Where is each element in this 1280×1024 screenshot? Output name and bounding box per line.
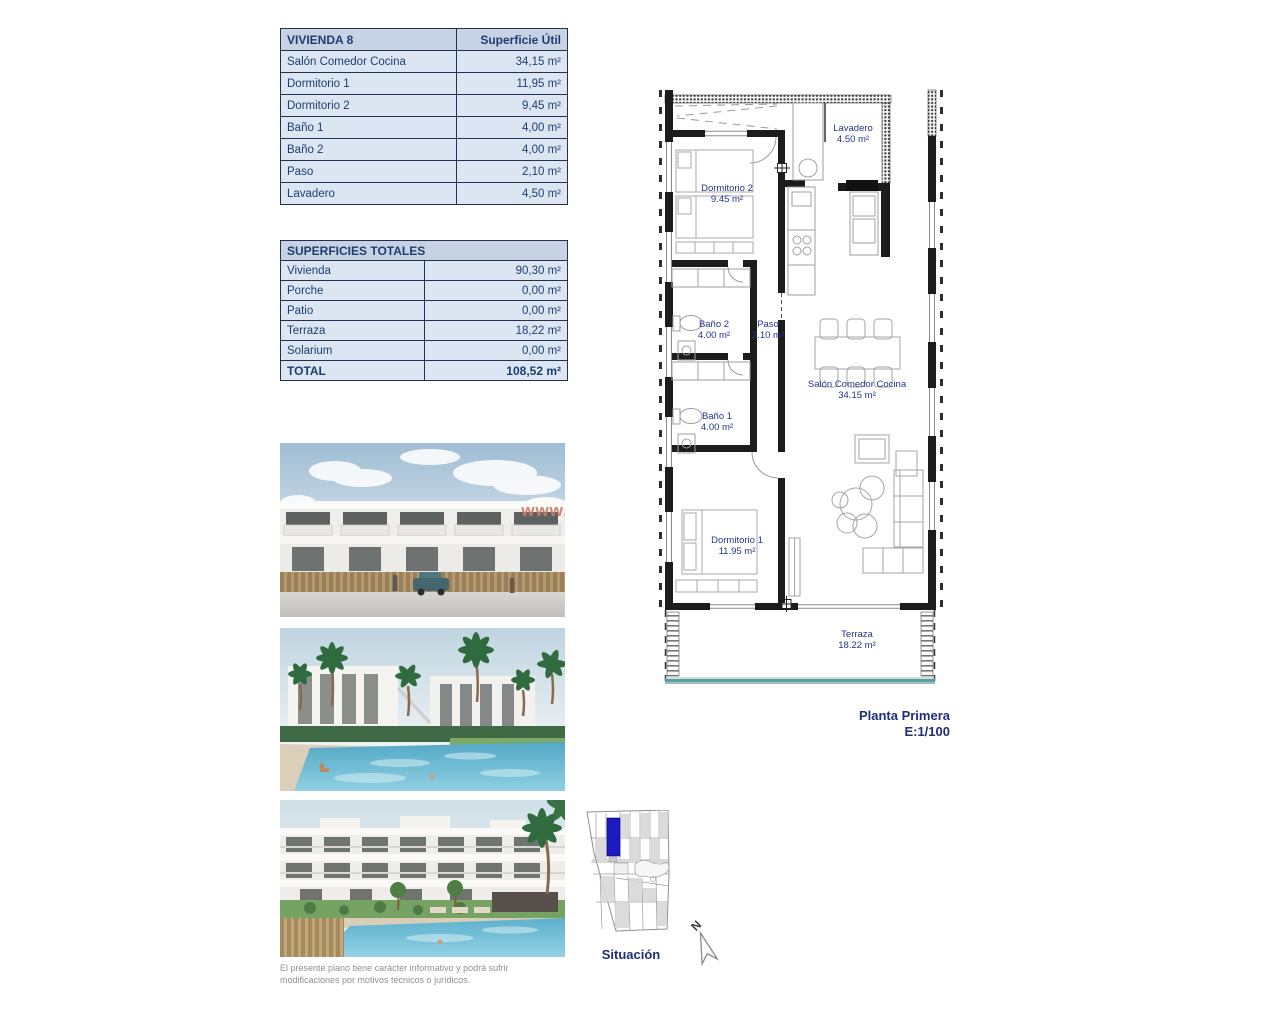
table-row: Porche0,00 m² [281, 281, 568, 301]
room-label-paso: Paso 2.10 m² [752, 319, 784, 341]
room-label: Baño 1 [281, 117, 457, 139]
table-row: Vivienda90,30 m² [281, 261, 568, 281]
render-photo-pool-palms [280, 628, 565, 791]
room-label: Paso [281, 161, 457, 183]
render-photo-apartments [280, 800, 565, 957]
total-value: 0,00 m² [424, 301, 568, 321]
townhouses-illustration [280, 443, 565, 617]
room-label: Dormitorio 1 [281, 73, 457, 95]
watermark-text: www. [521, 501, 565, 521]
table-row: Salón Comedor Cocina34,15 m² [281, 51, 568, 73]
total-value: 18,22 m² [424, 321, 568, 341]
table-row: Lavadero4,50 m² [281, 183, 568, 205]
total-value: 0,00 m² [424, 341, 568, 361]
grand-total-value: 108,52 m² [424, 361, 568, 381]
room-label-lavadero: Lavadero 4.50 m² [833, 123, 873, 145]
pool-illustration [280, 628, 565, 791]
room-value: 11,95 m² [457, 73, 568, 95]
room-label-dormitorio-1: Dormitorio 1 11.95 m² [711, 535, 763, 557]
room-value: 2,10 m² [457, 161, 568, 183]
table-header: VIVIENDA 8 Superficie Útil [281, 29, 568, 51]
table-row: Baño 14,00 m² [281, 117, 568, 139]
total-label: Vivienda [281, 261, 425, 281]
table-row: Paso2,10 m² [281, 161, 568, 183]
room-label: Dormitorio 2 [281, 95, 457, 117]
room-label-bano-1: Baño 1 4.00 m² [701, 411, 733, 433]
plan-caption-scale: E:1/100 [790, 724, 950, 740]
room-label: Baño 2 [281, 139, 457, 161]
site-plan [580, 810, 680, 948]
room-value: 4,50 m² [457, 183, 568, 205]
plan-caption-title: Planta Primera [790, 708, 950, 724]
table-title: VIVIENDA 8 [281, 29, 457, 51]
floorplan: Dormitorio 2 9.45 m² Lavadero 4.50 m² Ba… [650, 80, 960, 745]
room-label-salon: Salón Comedor Cocina 34.15 m² [808, 379, 906, 401]
table-row: Solarium0,00 m² [281, 341, 568, 361]
total-label: Solarium [281, 341, 425, 361]
table-row: Dormitorio 111,95 m² [281, 73, 568, 95]
room-value: 4,00 m² [457, 139, 568, 161]
site-plan-label: Situación [578, 947, 684, 962]
total-value: 90,30 m² [424, 261, 568, 281]
disclaimer-line-2: modificaciones por motivos técnicos o ju… [280, 974, 556, 986]
room-label-bano-2: Baño 2 4.00 m² [698, 319, 730, 341]
table-row: Baño 24,00 m² [281, 139, 568, 161]
total-label: Terraza [281, 321, 425, 341]
terrace-glass-balustrade [665, 679, 935, 683]
room-value: 9,45 m² [457, 95, 568, 117]
swimmer-illustration [437, 939, 442, 944]
plan-caption: Planta Primera E:1/100 [790, 708, 950, 740]
table-header: SUPERFICIES TOTALES [281, 241, 568, 261]
table-row: Terraza18,22 m² [281, 321, 568, 341]
north-letter: N [688, 918, 704, 934]
totals-table: SUPERFICIES TOTALES Vivienda90,30 m² Por… [280, 240, 568, 381]
surface-table: VIVIENDA 8 Superficie Útil Salón Comedor… [280, 28, 568, 205]
north-arrow: N [686, 914, 726, 972]
table-total-row: TOTAL108,52 m² [281, 361, 568, 381]
grand-total-label: TOTAL [281, 361, 425, 381]
room-label: Salón Comedor Cocina [281, 51, 457, 73]
floorplan-drawing [650, 80, 960, 745]
room-value: 34,15 m² [457, 51, 568, 73]
table-title: SUPERFICIES TOTALES [281, 241, 568, 261]
table-row: Dormitorio 29,45 m² [281, 95, 568, 117]
room-value: 4,00 m² [457, 117, 568, 139]
room-label-dormitorio-2: Dormitorio 2 9.45 m² [701, 183, 753, 205]
total-label: Patio [281, 301, 425, 321]
disclaimer-line-1: El presente plano tiene carácter informa… [280, 962, 556, 974]
disclaimer-text: El presente plano tiene carácter informa… [280, 962, 556, 986]
total-label: Porche [281, 281, 425, 301]
room-label: Lavadero [281, 183, 457, 205]
highlighted-unit [607, 818, 620, 856]
table-row: Patio0,00 m² [281, 301, 568, 321]
entry-door [846, 180, 878, 191]
total-value: 0,00 m² [424, 281, 568, 301]
survey-marker [774, 160, 790, 176]
render-photo-townhouses: www. [280, 443, 565, 617]
apartments-illustration [280, 800, 565, 957]
room-label-terraza: Terraza 18.22 m² [838, 629, 876, 651]
table-header-right: Superficie Útil [457, 29, 568, 51]
brochure-page: VIVIENDA 8 Superficie Útil Salón Comedor… [0, 0, 1280, 1024]
